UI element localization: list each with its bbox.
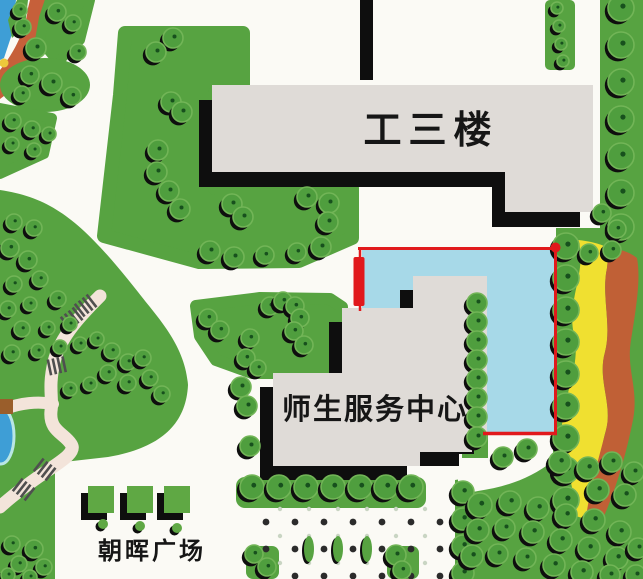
tree-core xyxy=(150,375,153,378)
tree-crown xyxy=(23,570,37,579)
tree-crown xyxy=(600,565,620,579)
tree-crown xyxy=(5,113,21,129)
tree-crown xyxy=(399,475,423,499)
tree-crown xyxy=(522,521,544,543)
tree-crown xyxy=(250,360,266,376)
tree-core xyxy=(610,572,614,576)
tree-crown xyxy=(577,457,599,479)
tree-crown xyxy=(374,475,398,499)
tree-crown xyxy=(120,375,136,391)
tree-crown xyxy=(231,377,251,397)
tree-core xyxy=(251,483,256,488)
tree-core xyxy=(300,315,304,319)
tree-core xyxy=(477,357,481,361)
zhaohui-square-tile xyxy=(81,486,114,520)
tree-crown xyxy=(467,331,487,351)
tree-core xyxy=(97,336,100,339)
tree-crown xyxy=(499,491,521,513)
highlight-corner-dot xyxy=(551,243,561,253)
tree-crown xyxy=(1,239,19,257)
tree-core xyxy=(477,300,481,304)
tree-crown xyxy=(24,121,40,137)
highlight-left-bar xyxy=(354,257,365,306)
tree-core xyxy=(73,20,76,23)
tree-crown xyxy=(14,321,30,337)
plaza-dot xyxy=(379,546,386,553)
tree-crown xyxy=(0,301,16,317)
label-gongsanlou: 工三楼 xyxy=(363,110,498,152)
tree-core xyxy=(479,501,484,506)
tree-core xyxy=(294,328,298,332)
tree-core xyxy=(410,483,415,488)
tree-core xyxy=(295,303,299,307)
plaza-dot xyxy=(321,546,328,553)
tree-core xyxy=(14,219,17,222)
tree-crown xyxy=(608,69,634,95)
tree-core xyxy=(462,515,466,519)
tree-core xyxy=(70,321,73,324)
tree-crown xyxy=(104,343,120,359)
tree-core xyxy=(498,551,502,555)
tree-crown xyxy=(240,436,260,456)
tree-core xyxy=(34,147,37,150)
pond xyxy=(0,408,14,464)
tree-core xyxy=(250,443,254,447)
tree-core xyxy=(162,391,165,394)
tree-core xyxy=(30,72,34,76)
tree-crown xyxy=(488,544,508,564)
tree-core xyxy=(560,536,564,540)
tree-core xyxy=(589,250,593,254)
tree-core xyxy=(283,298,287,302)
tree-crown xyxy=(318,212,338,232)
tree-crown xyxy=(148,140,168,160)
tree-core xyxy=(182,109,186,113)
tree-crown xyxy=(608,0,634,21)
tree-core xyxy=(60,344,63,347)
tree-core xyxy=(620,114,625,119)
tree-crown xyxy=(241,329,259,347)
plaza-dot xyxy=(423,534,427,538)
tree-core xyxy=(258,365,261,368)
tree-crown xyxy=(65,15,81,31)
plaza-shrub xyxy=(331,536,343,564)
tree-core xyxy=(14,281,17,284)
tree-core xyxy=(620,3,625,8)
tree-crown xyxy=(608,106,634,132)
tree-core xyxy=(70,386,73,389)
tree-crown xyxy=(495,518,515,538)
tree-core xyxy=(52,80,56,84)
tree-core xyxy=(112,348,115,351)
tree-core xyxy=(612,459,616,463)
tree-core xyxy=(477,338,481,342)
tree-crown xyxy=(42,73,62,93)
tree-crown xyxy=(147,162,167,182)
tree-core xyxy=(617,226,621,230)
tree-core xyxy=(597,486,601,490)
plaza-dot xyxy=(336,507,340,511)
plaza-dot xyxy=(350,573,357,579)
tree-core xyxy=(234,254,238,258)
tree-core xyxy=(558,24,561,27)
tree-core xyxy=(556,6,559,9)
tree-core xyxy=(612,247,616,251)
tree-crown xyxy=(25,540,43,558)
tree-core xyxy=(128,359,131,362)
tree-crown xyxy=(467,388,487,408)
tree-core xyxy=(307,194,311,198)
plaza-shrub xyxy=(360,536,372,564)
tree-crown xyxy=(256,246,274,264)
plaza-dot xyxy=(394,507,398,511)
tree-core xyxy=(72,93,76,97)
plaza-dot xyxy=(278,534,282,538)
tree-core xyxy=(560,42,563,45)
tree-core xyxy=(78,49,81,52)
tree-core xyxy=(477,376,481,380)
tree-core xyxy=(620,151,625,156)
tree-crown xyxy=(467,519,489,541)
tree-crown xyxy=(70,44,86,60)
tree-crown xyxy=(608,220,626,238)
tree-core xyxy=(503,454,507,458)
tree-core xyxy=(634,469,638,473)
trees-pathside xyxy=(228,377,260,459)
tree-crown xyxy=(4,345,20,361)
plaza-dot xyxy=(437,573,444,579)
tree-core xyxy=(565,495,570,500)
tree-crown xyxy=(516,548,536,568)
tree-crown xyxy=(467,407,487,427)
tree-core xyxy=(156,49,160,53)
tree-core xyxy=(30,574,33,577)
tree-core xyxy=(477,395,481,399)
campus-map: 工三楼 师生服务中心 朝晖广场 xyxy=(0,0,643,579)
plaza-dot xyxy=(394,534,398,538)
tree-core xyxy=(562,59,565,62)
tree-crown xyxy=(311,237,331,257)
tree-crown xyxy=(393,561,411,579)
dot-face xyxy=(98,519,108,529)
tree-core xyxy=(143,355,146,358)
tree-crown xyxy=(467,369,487,389)
tree-core xyxy=(22,91,25,94)
plaza-dot xyxy=(437,519,444,526)
tree-core xyxy=(565,337,570,342)
tree-core xyxy=(462,488,466,492)
tree-crown xyxy=(297,187,317,207)
tree-core xyxy=(305,483,310,488)
tile-face xyxy=(88,486,114,513)
plaza-dot xyxy=(365,507,369,511)
tree-crown xyxy=(319,193,339,213)
tree-crown xyxy=(583,509,605,531)
tree-crown xyxy=(15,19,31,35)
tree-core xyxy=(565,273,570,278)
tree-core xyxy=(80,341,83,344)
tree-crown xyxy=(549,451,571,473)
tree-core xyxy=(559,458,563,462)
tree-crown xyxy=(146,42,166,62)
zhaohui-dot xyxy=(170,523,183,536)
plaza-dot xyxy=(350,546,357,553)
tree-core xyxy=(396,552,400,556)
tree-core xyxy=(638,545,642,549)
plaza-dot xyxy=(423,507,427,511)
tree-core xyxy=(171,99,175,103)
tree-core xyxy=(20,7,23,10)
tree-core xyxy=(32,126,35,129)
tree-crown xyxy=(36,559,52,575)
plaza-dot xyxy=(292,573,299,579)
tree-crown xyxy=(608,143,634,169)
tree-core xyxy=(49,131,52,134)
tree-core xyxy=(624,491,628,495)
plaza-dot xyxy=(408,546,415,553)
tree-core xyxy=(304,342,308,346)
map-shapes xyxy=(0,0,643,579)
tree-core xyxy=(477,434,481,438)
plaza-dot xyxy=(278,507,282,511)
tree-core xyxy=(158,147,162,151)
tree-crown xyxy=(154,386,170,402)
tree-crown xyxy=(135,350,151,366)
tree-core xyxy=(565,369,570,374)
plaza-dot xyxy=(321,519,328,526)
tree-crown xyxy=(19,251,37,269)
pond-bridge xyxy=(0,399,13,414)
tree-core xyxy=(477,319,481,323)
tree-crown xyxy=(6,276,22,292)
tree-core xyxy=(278,483,283,488)
label-service-center: 师生服务中心 xyxy=(282,393,468,426)
shrub-body xyxy=(362,536,372,562)
tree-core xyxy=(241,384,245,388)
plaza-dot xyxy=(379,519,386,526)
tree-core xyxy=(254,551,258,555)
tree-core xyxy=(108,370,111,373)
plaza-dot xyxy=(379,573,386,579)
tree-core xyxy=(210,248,214,252)
tree-core xyxy=(588,544,592,548)
tree-crown xyxy=(461,545,483,567)
shrub-body xyxy=(304,536,314,562)
tree-core xyxy=(297,249,301,253)
tree-core xyxy=(265,252,269,256)
plaza-dot xyxy=(321,573,328,579)
tree-core xyxy=(36,45,40,49)
tree-core xyxy=(58,296,61,299)
tree-crown xyxy=(14,86,30,102)
tree-crown xyxy=(4,536,20,552)
tree-core xyxy=(12,541,15,544)
tree-core xyxy=(169,188,173,192)
tree-crown xyxy=(603,241,621,259)
tree-core xyxy=(12,350,15,353)
zhaohui-dot xyxy=(96,519,109,532)
tree-core xyxy=(619,528,623,532)
tree-core xyxy=(267,564,271,568)
tree-core xyxy=(553,561,557,565)
tree-core xyxy=(246,355,250,359)
tree-core xyxy=(359,483,364,488)
tree-core xyxy=(34,546,38,550)
tree-core xyxy=(247,403,251,407)
tree-core xyxy=(565,241,570,246)
tree-core xyxy=(477,526,481,530)
tree-crown xyxy=(26,220,42,236)
tree-crown xyxy=(587,479,609,501)
tree-core xyxy=(34,225,37,228)
tree-core xyxy=(527,446,531,450)
tree-core xyxy=(40,276,43,279)
plaza-dot xyxy=(408,519,415,526)
tree-crown xyxy=(258,558,276,576)
zhaohui-dot xyxy=(133,521,146,534)
tree-crown xyxy=(224,247,244,267)
plaza-shrub xyxy=(302,536,314,564)
dot-face xyxy=(135,521,145,531)
tree-crown xyxy=(100,365,116,381)
tree-crown xyxy=(578,537,600,559)
tree-core xyxy=(565,305,570,310)
tree-crown xyxy=(580,244,598,262)
zhaohui-square-tile xyxy=(157,486,190,520)
plaza-dot xyxy=(292,546,299,553)
tree-core xyxy=(180,206,184,210)
tree-core xyxy=(636,572,640,576)
plaza-dot xyxy=(292,519,299,526)
tree-core xyxy=(30,301,33,304)
shadow-bar-top xyxy=(360,0,373,80)
tree-crown xyxy=(614,484,636,506)
tree-core xyxy=(565,401,570,406)
tree-core xyxy=(208,315,212,319)
plaza-dot xyxy=(263,546,270,553)
tree-crown xyxy=(267,475,291,499)
tree-core xyxy=(402,567,406,571)
tree-core xyxy=(505,525,509,529)
tree-crown xyxy=(295,336,313,354)
tree-crown xyxy=(237,396,257,416)
tree-crown xyxy=(348,475,372,499)
tree-crown xyxy=(608,180,634,206)
tree-core xyxy=(173,35,177,39)
tree-core xyxy=(581,568,585,572)
tree-crown xyxy=(240,475,264,499)
tree-crown xyxy=(602,452,622,472)
tree-crown xyxy=(233,207,253,227)
tree-icon xyxy=(237,436,260,459)
tree-core xyxy=(620,188,625,193)
tree-crown xyxy=(32,271,48,287)
tree-crown xyxy=(172,102,192,122)
tree-crown xyxy=(211,321,229,339)
tree-core xyxy=(616,554,620,558)
tree-core xyxy=(23,24,26,27)
tree-crown xyxy=(467,312,487,332)
tree-core xyxy=(220,327,224,331)
tree-crown xyxy=(6,214,22,230)
tree-crown xyxy=(159,181,179,201)
plaza-dot xyxy=(307,507,311,511)
tile-face xyxy=(127,486,153,513)
tree-crown xyxy=(517,439,537,459)
tree-core xyxy=(38,348,41,351)
tree-crown xyxy=(467,293,487,313)
plaza-dot xyxy=(423,561,427,565)
plaza-dot xyxy=(263,519,270,526)
tree-crown xyxy=(467,350,487,370)
tree-crown xyxy=(294,475,318,499)
tree-crown xyxy=(608,32,634,58)
tree-crown xyxy=(543,554,565,576)
tree-core xyxy=(620,77,625,82)
tree-core xyxy=(593,516,597,520)
tree-core xyxy=(44,564,47,567)
tree-crown xyxy=(163,28,183,48)
tree-core xyxy=(532,528,536,532)
tree-core xyxy=(602,210,606,214)
tree-core xyxy=(13,118,16,121)
tree-core xyxy=(243,214,247,218)
tree-core xyxy=(526,555,530,559)
tree-core xyxy=(90,381,93,384)
tree-crown xyxy=(321,475,345,499)
tree-crown xyxy=(550,529,572,551)
tree-crown xyxy=(468,493,492,517)
label-zhaohui-plaza: 朝晖广场 xyxy=(98,537,206,565)
tree-crown xyxy=(624,462,643,482)
tree-core xyxy=(232,201,236,205)
tree-core xyxy=(8,306,11,309)
tree-crown xyxy=(493,447,513,467)
tree-core xyxy=(250,335,254,339)
tree-core xyxy=(537,504,541,508)
tree-crown xyxy=(50,291,66,307)
tree-core xyxy=(471,552,475,556)
tree-crown xyxy=(200,241,220,261)
plaza-dot xyxy=(437,546,444,553)
tree-crown xyxy=(48,3,66,21)
tree-core xyxy=(8,572,11,575)
tree-core xyxy=(12,141,15,144)
shrub-body xyxy=(333,536,343,562)
tree-core xyxy=(332,483,337,488)
tree-crown xyxy=(467,427,487,447)
tree-crown xyxy=(142,370,158,386)
tree-crown xyxy=(21,66,39,84)
tree-core xyxy=(22,326,25,329)
tree-crown xyxy=(63,87,81,105)
tree-crown xyxy=(555,504,577,526)
tree-core xyxy=(620,40,625,45)
tree-core xyxy=(565,511,569,515)
tree-core xyxy=(587,464,591,468)
tree-core xyxy=(57,9,61,13)
tree-crown xyxy=(609,521,631,543)
tree-crown xyxy=(170,199,190,219)
plaza-dot xyxy=(278,561,282,565)
tree-core xyxy=(329,200,333,204)
tree-crown xyxy=(26,38,46,58)
tree-core xyxy=(128,380,131,383)
tree-core xyxy=(477,414,481,418)
dot-face xyxy=(172,523,182,533)
tree-crown xyxy=(527,497,549,519)
tree-core xyxy=(28,257,32,261)
